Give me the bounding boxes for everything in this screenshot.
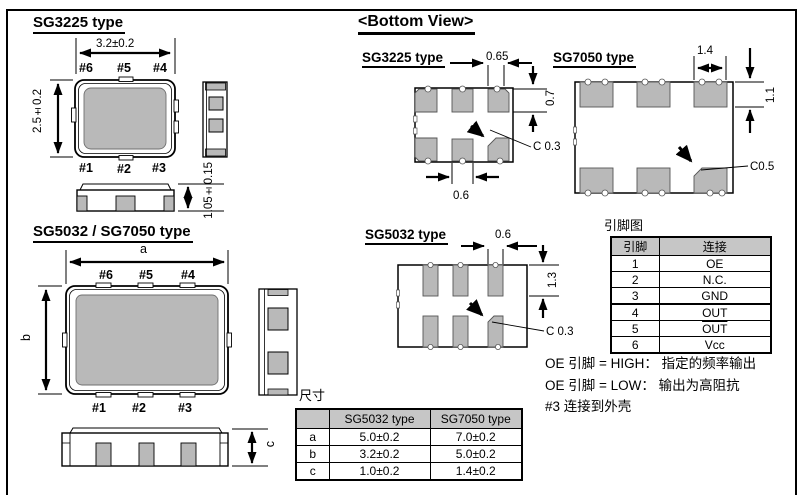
table-row: 1 OE [611,256,771,272]
bv-sg3225-chamfer-label: C 0.3 [533,141,561,153]
pin-connection-cell: OUT [659,304,771,321]
sg3225-pin2-label: #2 [117,163,131,176]
sg3225-pin3-label: #3 [152,162,166,175]
dimensions-table: SG5032 type SG7050 type a 5.0±0.2 7.0±0.… [295,408,523,481]
table-row: 6 Vcc [611,337,771,354]
bottom-view-sg5032 [397,245,560,350]
dim-letter-cell: b [296,446,329,463]
table-row: a 5.0±0.2 7.0±0.2 [296,429,522,446]
bottom-view-sg7050 [574,48,765,196]
sg3225-section-title: SG3225 type [33,15,125,34]
dim-letter-cell: a [296,429,329,446]
bv-sg5032-pad-height-label: 1.3 [547,272,559,288]
pin-connection-cell: OE [659,256,771,272]
note-oe-low: OE 引脚 = LOW： 输出为高阻抗 [545,379,740,393]
bv-sg7050-title: SG7050 type [553,51,636,68]
sg3225-pin1-label: #1 [79,162,93,175]
sg5032-pin3-label: #3 [178,402,192,415]
out-bar-signal: OUT [702,322,727,336]
sg3225-side-view [203,82,227,157]
bv-sg7050-pad-height-label: 1.1 [765,87,777,103]
pin-number-cell: 4 [611,304,659,321]
sg3225-package-top-view [72,77,179,160]
table-row: 3 GND [611,288,771,305]
pin-map-table: 引脚 连接 1 OE 2 N.C. 3 GND 4 OUT 5 OUT 6 Vc… [610,236,772,354]
dim-value-cell: 1.4±0.2 [430,463,522,481]
sg5032-width-dim-label: a [140,243,147,256]
sg5032-height-view [62,428,268,466]
note-pin3-case: #3 连接到外壳 [545,400,631,414]
pin-connection-cell: OUT [659,321,771,337]
bv-sg5032-title: SG5032 type [365,228,448,245]
pin-connection-cell: GND [659,288,771,305]
bv-sg3225-pad-height-label: 0.7 [545,90,557,106]
dimensions-table-title: 尺寸 [299,389,325,403]
sg3225-height-dim-label: 2.5±0.2 [32,89,44,133]
sg3225-thickness-dim-label: 1.05±0.15 [203,162,215,219]
pin-number-cell: 1 [611,256,659,272]
pin-connection-cell: Vcc [659,337,771,354]
dim-value-cell: 3.2±0.2 [329,446,430,463]
dim-value-cell: 7.0±0.2 [430,429,522,446]
pin-connection-cell: N.C. [659,272,771,288]
pin-number-cell: 3 [611,288,659,305]
sg5032-lid [76,295,218,385]
datasheet-drawing-page: SG3225 type 3.2±0.2 #6 #5 #4 2.5±0.2 #1 … [0,0,803,495]
sg3225-width-dim-label: 3.2±0.2 [96,38,134,50]
sg5032-pin2-label: #2 [132,402,146,415]
pin-connection-header: 连接 [659,237,771,256]
table-row: 2 N.C. [611,272,771,288]
bv-sg7050-chamfer-label: C0.5 [750,161,774,173]
bottom-view-sg3225 [414,63,548,184]
note-oe-high: OE 引脚 = HIGH： 指定的频率输出 [545,357,756,371]
table-row: b 3.2±0.2 5.0±0.2 [296,446,522,463]
table-row: 4 OUT [611,304,771,321]
pin-number-cell: 6 [611,337,659,354]
dim-value-cell: 1.0±0.2 [329,463,430,481]
sg5032-thickness-dim-label: c [264,441,277,447]
sg5032-package-top-view [63,283,232,397]
sg5032-pin6-label: #6 [99,269,113,282]
dim-letter-cell: c [296,463,329,481]
sg5032-pin4-label: #4 [181,269,195,282]
bottom-view-title: <Bottom View> [358,14,475,35]
dim-value-cell: 5.0±0.2 [430,446,522,463]
sg3225-pin6-label: #6 [79,62,93,75]
bv-sg5032-pad-width-label: 0.6 [495,229,511,241]
sg3225-height-view [77,184,224,211]
bv-sg3225-pad-width-label: 0.65 [486,51,508,63]
bv-sg7050-pad-width-label: 1.4 [697,45,713,57]
sg5032-side-view [259,289,297,395]
sg5032-7050-section-title: SG5032 / SG7050 type [33,224,193,243]
pin-number-header: 引脚 [611,237,659,256]
sg3225-pin5-label: #5 [117,62,131,75]
dim-letter-header [296,409,329,429]
pin-number-cell: 5 [611,321,659,337]
dim-value-cell: 5.0±0.2 [329,429,430,446]
sg7050-column-header: SG7050 type [430,409,522,429]
pin-number-cell: 2 [611,272,659,288]
sg5032-height-dim-label: b [20,334,33,341]
pin-map-header-row: 引脚 连接 [611,237,771,256]
bv-sg3225-title: SG3225 type [362,51,445,68]
sg5032-pin1-label: #1 [92,402,106,415]
sg5032-column-header: SG5032 type [329,409,430,429]
sg5032-pin5-label: #5 [139,269,153,282]
sg3225-pin4-label: #4 [153,62,167,75]
table-row: 5 OUT [611,321,771,337]
sg3225-lid [84,88,166,149]
bv-sg5032-chamfer-label: C 0.3 [546,326,574,338]
pin-map-title: 引脚图 [604,219,643,233]
table-row: c 1.0±0.2 1.4±0.2 [296,463,522,481]
bv-sg3225-pad-pitch-label: 0.6 [453,190,469,202]
dimensions-header-row: SG5032 type SG7050 type [296,409,522,429]
